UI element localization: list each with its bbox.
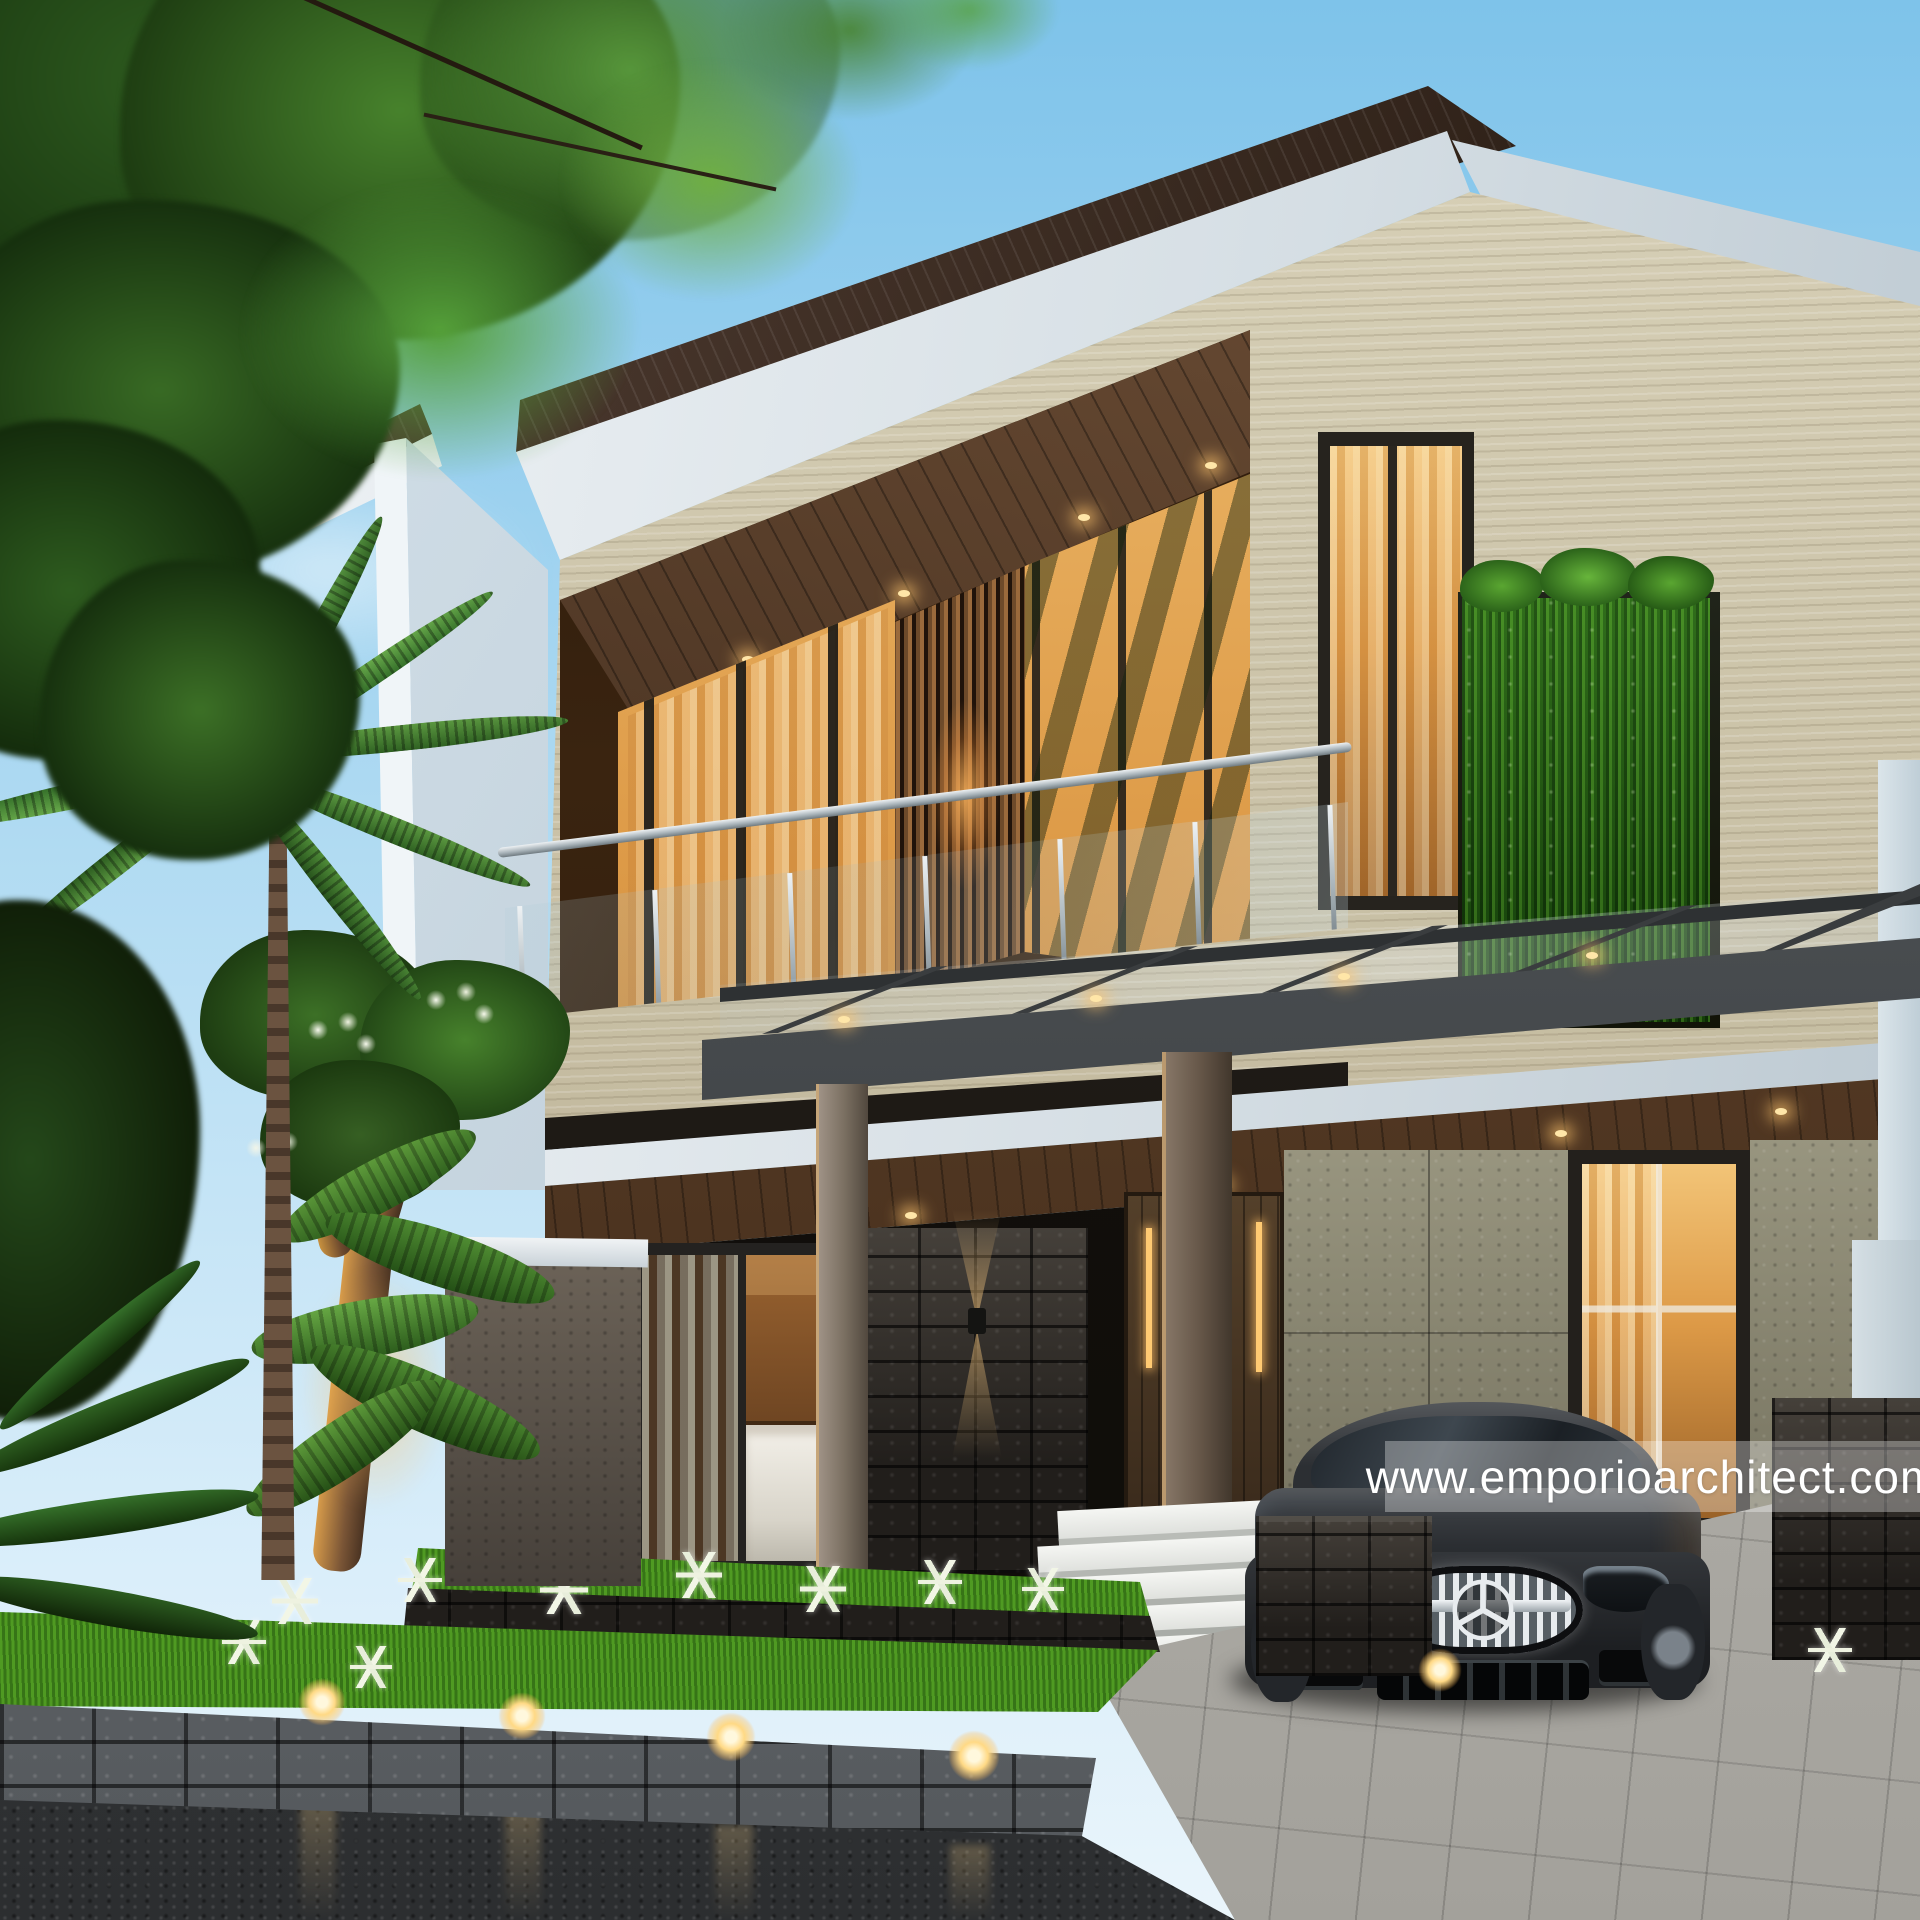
porch-downlight — [1775, 1108, 1787, 1115]
canopy-downlight — [1338, 973, 1350, 980]
garden-light — [298, 1678, 346, 1726]
spider-lily — [398, 1558, 442, 1602]
canopy-downlight — [1090, 995, 1102, 1002]
canopy-downlight — [838, 1016, 850, 1023]
spider-lily — [918, 1560, 962, 1604]
porch-downlight — [1555, 1130, 1567, 1137]
second-floor-window-mullion — [1388, 446, 1397, 896]
white-wall-right — [1852, 1240, 1920, 1410]
soffit-downlight — [1205, 462, 1217, 469]
garden-light — [706, 1712, 756, 1762]
car-wheel — [1641, 1584, 1705, 1700]
white-corner-wall — [1878, 760, 1920, 1260]
road-reflection — [505, 1805, 541, 1920]
garden-light — [498, 1692, 546, 1740]
spider-lily — [272, 1578, 318, 1624]
door-glass-slit — [1256, 1222, 1262, 1372]
spider-lily — [676, 1552, 722, 1598]
door-glass-slit — [1146, 1228, 1152, 1368]
stone-planter — [1256, 1516, 1432, 1676]
spider-lily — [350, 1646, 392, 1688]
canopy-downlight — [1586, 952, 1598, 959]
spider-lily — [1808, 1628, 1852, 1672]
mercedes-star-icon — [1451, 1578, 1515, 1642]
porch-downlight — [905, 1212, 917, 1219]
garden-light — [948, 1730, 1000, 1782]
architectural-render-scene: www.emporioarchitect.com — [0, 0, 1920, 1920]
garden-light — [1418, 1648, 1462, 1692]
spider-lily — [1022, 1568, 1064, 1610]
spider-lily — [800, 1566, 846, 1612]
road-reflection — [950, 1845, 990, 1920]
bedroom-curtain — [642, 1255, 738, 1561]
watermark-text: www.emporioarchitect.com — [1366, 1450, 1920, 1504]
wall-panel-seam — [1284, 1332, 1568, 1334]
road-reflection — [715, 1825, 753, 1920]
stone-planter-right — [1772, 1398, 1920, 1660]
watermark-band: www.emporioarchitect.com — [1385, 1441, 1920, 1512]
soffit-downlight — [1078, 514, 1090, 521]
soffit-downlight — [898, 590, 910, 597]
wall-sconce — [968, 1308, 986, 1334]
